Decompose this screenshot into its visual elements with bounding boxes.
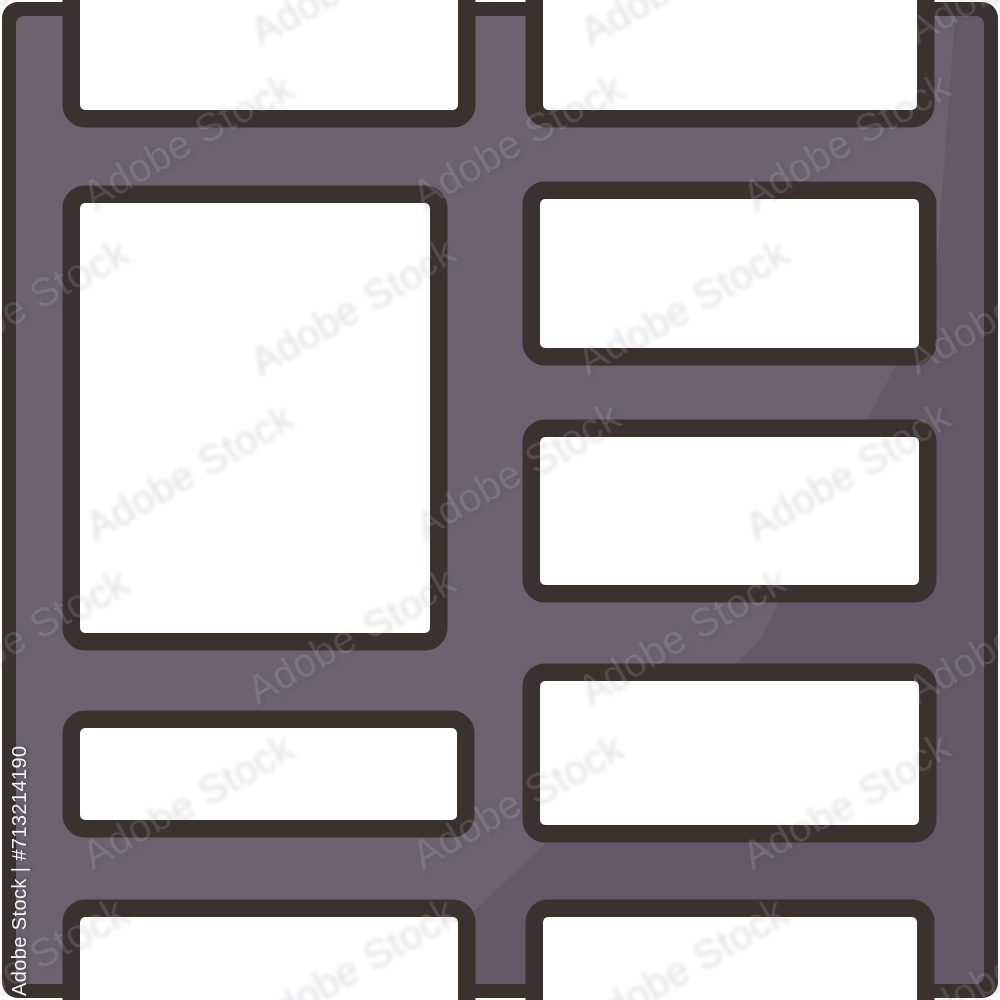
- shelf-opening-bottom-left-gap: [71, 908, 467, 1000]
- stock-image-preview: Adobe StockAdobe StockAdobe StockAdobe S…: [0, 0, 1000, 1000]
- shelf-opening-top-left-gap: [71, 0, 467, 119]
- shelf-opening-top-right-gap: [534, 0, 926, 119]
- shelf-opening-right-bottom: [531, 672, 928, 834]
- shelf-opening-bottom-right-gap: [534, 908, 926, 1000]
- shelf-opening-left-large: [71, 194, 439, 642]
- shelf-icon-graphic: [0, 0, 1000, 1000]
- shelf-opening-right-top: [531, 190, 928, 357]
- shelf-opening-left-small: [71, 719, 466, 829]
- shelf-opening-right-middle: [531, 428, 928, 594]
